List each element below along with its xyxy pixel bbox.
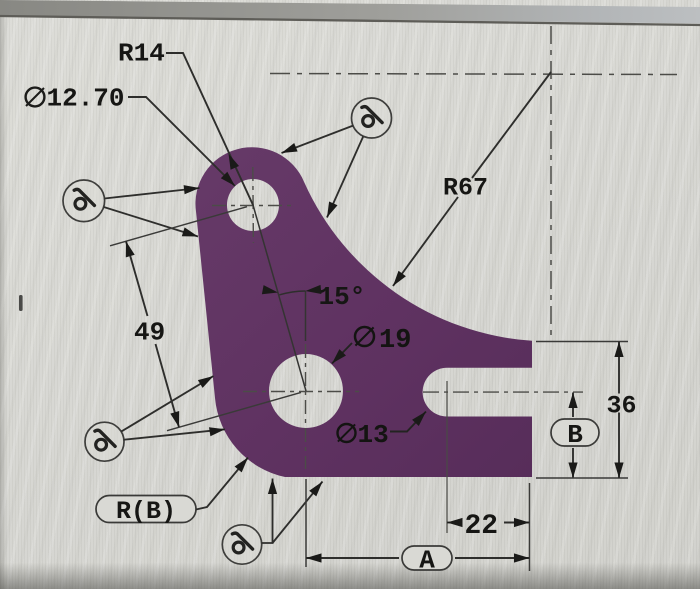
- svg-text:R(B): R(B): [116, 497, 176, 526]
- svg-text:13: 13: [358, 420, 389, 450]
- svg-text:15°: 15°: [319, 282, 366, 312]
- svg-text:A: A: [419, 545, 435, 575]
- svg-text:B: B: [567, 420, 583, 450]
- svg-text:22: 22: [465, 511, 499, 542]
- svg-text:R67: R67: [443, 174, 488, 203]
- svg-text:19: 19: [379, 326, 411, 356]
- svg-text:36: 36: [607, 392, 637, 421]
- svg-text:12.70: 12.70: [47, 84, 125, 114]
- svg-text:49: 49: [134, 318, 165, 348]
- svg-text:R14: R14: [118, 39, 165, 69]
